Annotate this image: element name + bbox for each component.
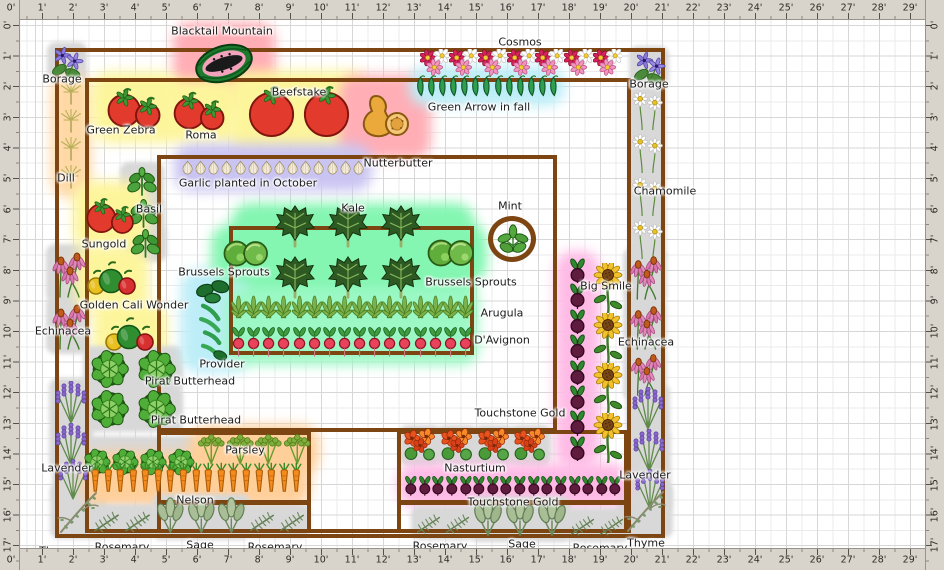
ruler-tick-label: 0'	[930, 21, 941, 30]
ruler-tick-label: 6'	[193, 3, 202, 14]
ruler-tick-label: 9'	[930, 296, 941, 305]
plant-label[interactable]: Provider	[199, 358, 244, 371]
ruler-tick-label: 2'	[930, 82, 941, 91]
ruler-tick-label: 17'	[930, 538, 941, 553]
ruler-tick-label: 18'	[562, 3, 577, 14]
plant-label[interactable]: Kale	[341, 202, 365, 215]
ruler-tick-label: 20'	[624, 3, 639, 14]
ruler-tick-label: 4'	[930, 143, 941, 152]
ruler-tick-label: 1'	[38, 3, 47, 14]
plant-label[interactable]: Nutterbutter	[364, 157, 433, 170]
ruler-tick-label: 9'	[3, 296, 14, 305]
plant-label[interactable]: Pirat Butterhead	[145, 375, 235, 388]
plant-label[interactable]: Nelson	[176, 494, 214, 507]
ruler-tick-label: 7'	[3, 235, 14, 244]
ruler-tick-label: 22'	[686, 555, 701, 566]
ruler-tick-label: 10'	[930, 324, 941, 339]
ruler-tick-label: 13'	[3, 415, 14, 430]
ruler-tick-label: 25'	[779, 555, 794, 566]
ruler-tick-label: 14'	[438, 3, 453, 14]
ruler-tick-label: 8'	[255, 3, 264, 14]
ruler-tick-label: 5'	[3, 174, 14, 183]
ruler-tick-label: 24'	[748, 3, 763, 14]
ruler-tick-label: 1'	[930, 51, 941, 60]
ruler-tick-label: 13'	[407, 3, 422, 14]
ruler-tick-label: 17'	[531, 555, 546, 566]
ruler-tick-label: 5'	[930, 174, 941, 183]
ruler-tick-label: 13'	[930, 415, 941, 430]
plant-label[interactable]: Arugula	[481, 307, 524, 320]
ruler-tick-label: 2'	[69, 3, 78, 14]
plant-label[interactable]: Lavender	[619, 469, 670, 482]
ruler-tick-label: 29'	[903, 3, 918, 14]
ruler-tick-label: 19'	[593, 3, 608, 14]
ruler-tick-label: 19'	[593, 555, 608, 566]
ruler-tick-label: 20'	[624, 555, 639, 566]
ruler-tick-label: 12'	[930, 385, 941, 400]
plant-label[interactable]: Garlic planted in October	[179, 177, 317, 190]
ruler-tick-label: 16'	[500, 3, 515, 14]
ruler-tick-label: 15'	[469, 3, 484, 14]
ruler-tick-label: 7'	[224, 555, 233, 566]
plant-label[interactable]: Chamomile	[634, 185, 696, 198]
plant-label[interactable]: Touchstone Gold	[468, 496, 559, 509]
ruler-tick-label: 26'	[810, 555, 825, 566]
ruler-tick-label: 25'	[779, 3, 794, 14]
ruler-tick-label: 28'	[872, 3, 887, 14]
plant-label[interactable]: Parsley	[225, 444, 264, 457]
ruler-tick-label: 0'	[7, 3, 16, 14]
ruler-tick-label: 21'	[655, 555, 670, 566]
ruler-tick-label: 15'	[3, 477, 14, 492]
ruler-tick-label: 28'	[872, 555, 887, 566]
ruler-tick-label: 24'	[748, 555, 763, 566]
ruler-tick-label: 14'	[930, 446, 941, 461]
ruler-tick-label: 22'	[686, 3, 701, 14]
plant-label[interactable]: Dill	[57, 172, 75, 185]
ruler-tick-label: 23'	[717, 3, 732, 14]
ruler-tick-label: 14'	[438, 555, 453, 566]
plant-label[interactable]: Big Smile	[580, 280, 632, 293]
ruler-tick-label: 2'	[69, 555, 78, 566]
ruler-tick-label: 9'	[286, 3, 295, 14]
ruler-tick-label: 15'	[930, 477, 941, 492]
ruler-tick-label: 18'	[562, 555, 577, 566]
ruler-tick-label: 13'	[407, 555, 422, 566]
ruler-tick-label: 16'	[930, 507, 941, 522]
plant-label[interactable]: Lavender	[41, 462, 92, 475]
plant-label[interactable]: Brussels Sprouts	[178, 266, 270, 279]
ruler-tick-label: 12'	[3, 385, 14, 400]
ruler-tick-label: 14'	[3, 446, 14, 461]
ruler-tick-label: 3'	[100, 555, 109, 566]
plant-label[interactable]: Green Zebra	[86, 124, 155, 137]
ruler-tick-label: 4'	[3, 143, 14, 152]
plant-label[interactable]: Beefstake	[272, 86, 326, 99]
ruler-tick-label: 12'	[376, 555, 391, 566]
garden-planner-canvas: Blacktail MountainBorageCosmosBorageGree…	[0, 0, 944, 570]
ruler-tick-label: 10'	[314, 555, 329, 566]
ruler-tick-label: 1'	[3, 51, 14, 60]
plant-label[interactable]: Echinacea	[35, 325, 91, 338]
plant-label[interactable]: Echinacea	[618, 336, 674, 349]
ruler-tick-label: 11'	[3, 354, 14, 369]
plant-label[interactable]: Nasturtium	[444, 462, 506, 475]
ruler-tick-label: 16'	[3, 507, 14, 522]
ruler-tick-label: 26'	[810, 3, 825, 14]
ruler-tick-label: 4'	[131, 555, 140, 566]
ruler-tick-label: 15'	[469, 555, 484, 566]
ruler-tick-label: 29'	[903, 555, 918, 566]
ruler-tick-label: 27'	[841, 555, 856, 566]
ruler-tick-label: 11'	[345, 555, 360, 566]
ruler-tick-label: 8'	[255, 555, 264, 566]
ruler-tick-label: 17'	[3, 538, 14, 553]
ruler-tick-label: 12'	[376, 3, 391, 14]
plant-label[interactable]: Golden Cali Wonder	[80, 299, 189, 312]
plant-label[interactable]: Sungold	[82, 238, 127, 251]
ruler-tick-label: 10'	[314, 3, 329, 14]
plant-label[interactable]: Mint	[498, 200, 522, 213]
ruler-tick-label: 11'	[345, 3, 360, 14]
plant-label[interactable]: Touchstone Gold	[475, 407, 566, 420]
plant-label[interactable]: Pirat Butterhead	[151, 414, 241, 427]
ruler-tick-label: 0'	[3, 21, 14, 30]
ruler-tick-label: 7'	[930, 235, 941, 244]
ruler-tick-label: 3'	[3, 112, 14, 121]
ruler-tick-label: 8'	[930, 265, 941, 274]
plant-label[interactable]: D'Avignon	[474, 334, 530, 347]
ruler-tick-label: 3'	[930, 112, 941, 121]
ruler-tick-label: 23'	[717, 555, 732, 566]
ruler-tick-label: 5'	[162, 3, 171, 14]
ruler-tick-label: 1'	[38, 555, 47, 566]
ruler-tick-label: 5'	[162, 555, 171, 566]
ruler-tick-label: 2'	[3, 82, 14, 91]
ruler-tick-label: 6'	[3, 204, 14, 213]
plant-label[interactable]: Brussels Sprouts	[425, 276, 517, 289]
plant-label[interactable]: Borage	[629, 78, 668, 91]
ruler-tick-label: 6'	[193, 555, 202, 566]
ruler-tick-label: 16'	[500, 555, 515, 566]
plant-labels-layer: Blacktail MountainBorageCosmosBorageGree…	[0, 0, 944, 570]
ruler-tick-label: 21'	[655, 3, 670, 14]
plant-label[interactable]: Cosmos	[498, 36, 541, 49]
plant-label[interactable]: Roma	[185, 129, 216, 142]
ruler-tick-label: 11'	[930, 354, 941, 369]
ruler-tick-label: 3'	[100, 3, 109, 14]
plant-label[interactable]: Green Arrow in fall	[428, 101, 530, 114]
ruler-tick-label: 17'	[531, 3, 546, 14]
plant-label[interactable]: Blacktail Mountain	[171, 25, 273, 38]
ruler-tick-label: 27'	[841, 3, 856, 14]
ruler-tick-label: 7'	[224, 3, 233, 14]
ruler-tick-label: 9'	[286, 555, 295, 566]
plant-label[interactable]: Basil	[136, 203, 162, 216]
ruler-tick-label: 6'	[930, 204, 941, 213]
ruler-tick-label: 8'	[3, 265, 14, 274]
ruler-tick-label: 4'	[131, 3, 140, 14]
plant-label[interactable]: Borage	[42, 73, 81, 86]
ruler-tick-label: 10'	[3, 324, 14, 339]
ruler-tick-label: 0'	[7, 555, 16, 566]
